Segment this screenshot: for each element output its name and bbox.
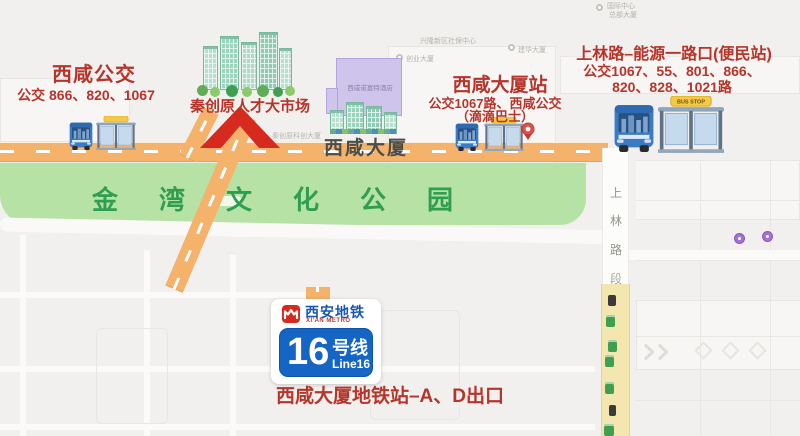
xian-metro-logo-icon bbox=[282, 305, 300, 323]
map-line bbox=[636, 200, 800, 201]
bus-marker-icon bbox=[606, 315, 615, 327]
bus-shelter-icon bbox=[96, 116, 136, 150]
map-line bbox=[636, 260, 800, 261]
bus-icon bbox=[610, 104, 658, 152]
map-poi-label: 创业大厦 bbox=[406, 54, 434, 64]
market-buildings bbox=[197, 30, 295, 96]
line-number: 16 bbox=[287, 329, 329, 376]
metro-brand-en: XI'AN METRO bbox=[306, 318, 351, 324]
map-block bbox=[636, 160, 800, 220]
map-road bbox=[0, 292, 310, 298]
park-name-label: 金湾文化公园 bbox=[92, 180, 494, 217]
road-name-char: 段 bbox=[610, 270, 622, 287]
road-name-char: 上 bbox=[610, 184, 622, 201]
map-line bbox=[700, 160, 701, 436]
road-name-char: 路 bbox=[610, 241, 622, 258]
tower-icon bbox=[241, 42, 257, 90]
map-poi-label: 建华大厦 bbox=[518, 45, 546, 55]
vehicle-icon bbox=[608, 295, 616, 306]
market-title: 秦创原人才大市场 bbox=[190, 95, 306, 116]
left-stop-routes: 公交 866、820、1067 bbox=[6, 85, 166, 105]
map-line bbox=[636, 400, 800, 401]
poi-pin-icon bbox=[734, 233, 745, 244]
map-line bbox=[636, 336, 800, 337]
map-road bbox=[230, 255, 236, 436]
left-stop-title: 西咸公交 bbox=[14, 58, 174, 87]
line16-badge: 16 号线 Line16 bbox=[279, 328, 373, 377]
bus-marker-icon bbox=[604, 424, 614, 436]
bus-icon bbox=[452, 123, 482, 151]
vehicle-icon bbox=[609, 405, 616, 416]
xixian-tower-label: 西咸大厦 bbox=[320, 133, 412, 160]
tower-icon bbox=[220, 36, 239, 90]
metro-exit-note: 西咸大厦地铁站–A、D出口 bbox=[210, 381, 570, 408]
map-road bbox=[20, 235, 26, 436]
map-line bbox=[770, 160, 771, 436]
poi-pin-icon bbox=[762, 231, 773, 242]
tower-icon bbox=[203, 46, 218, 90]
bus-marker-icon bbox=[605, 382, 614, 394]
line-name-en: Line16 bbox=[332, 357, 370, 371]
center-stop-note: （滴滴巴士） bbox=[420, 106, 570, 125]
bus-marker-icon bbox=[605, 355, 614, 367]
map-poi-label: 兴隆新区社保中心 bbox=[420, 36, 476, 46]
bus-shelter-icon: BUS STOP bbox=[658, 96, 724, 153]
bus-stop-sign-label: BUS STOP bbox=[677, 99, 705, 105]
tower-icon bbox=[259, 32, 278, 90]
market-map-label: 秦创原科创大厦 bbox=[272, 131, 321, 141]
right-stop-routes-2: 820、828、1021路 bbox=[560, 77, 784, 97]
road-name-char: 林 bbox=[610, 212, 622, 229]
map-road bbox=[628, 250, 800, 260]
map-pin-icon bbox=[596, 4, 603, 11]
map-block bbox=[96, 328, 168, 424]
map-road bbox=[0, 424, 595, 430]
map-poi-label: 总部大厦 bbox=[609, 10, 637, 20]
transit-guide-map: 兴隆新区社保中心 创业大厦 建华大厦 国际中心 总部大厦 金湾文化公园 上 林 … bbox=[0, 0, 800, 436]
map-pin-icon bbox=[508, 44, 515, 51]
bus-icon bbox=[66, 122, 96, 150]
tower-icon bbox=[279, 48, 292, 90]
hotel-label: 西咸诺富特酒店 bbox=[339, 82, 401, 92]
bus-marker-icon bbox=[608, 340, 617, 352]
metro-line-card: 西安地铁 XI'AN METRO 16 号线 Line16 bbox=[271, 299, 381, 384]
